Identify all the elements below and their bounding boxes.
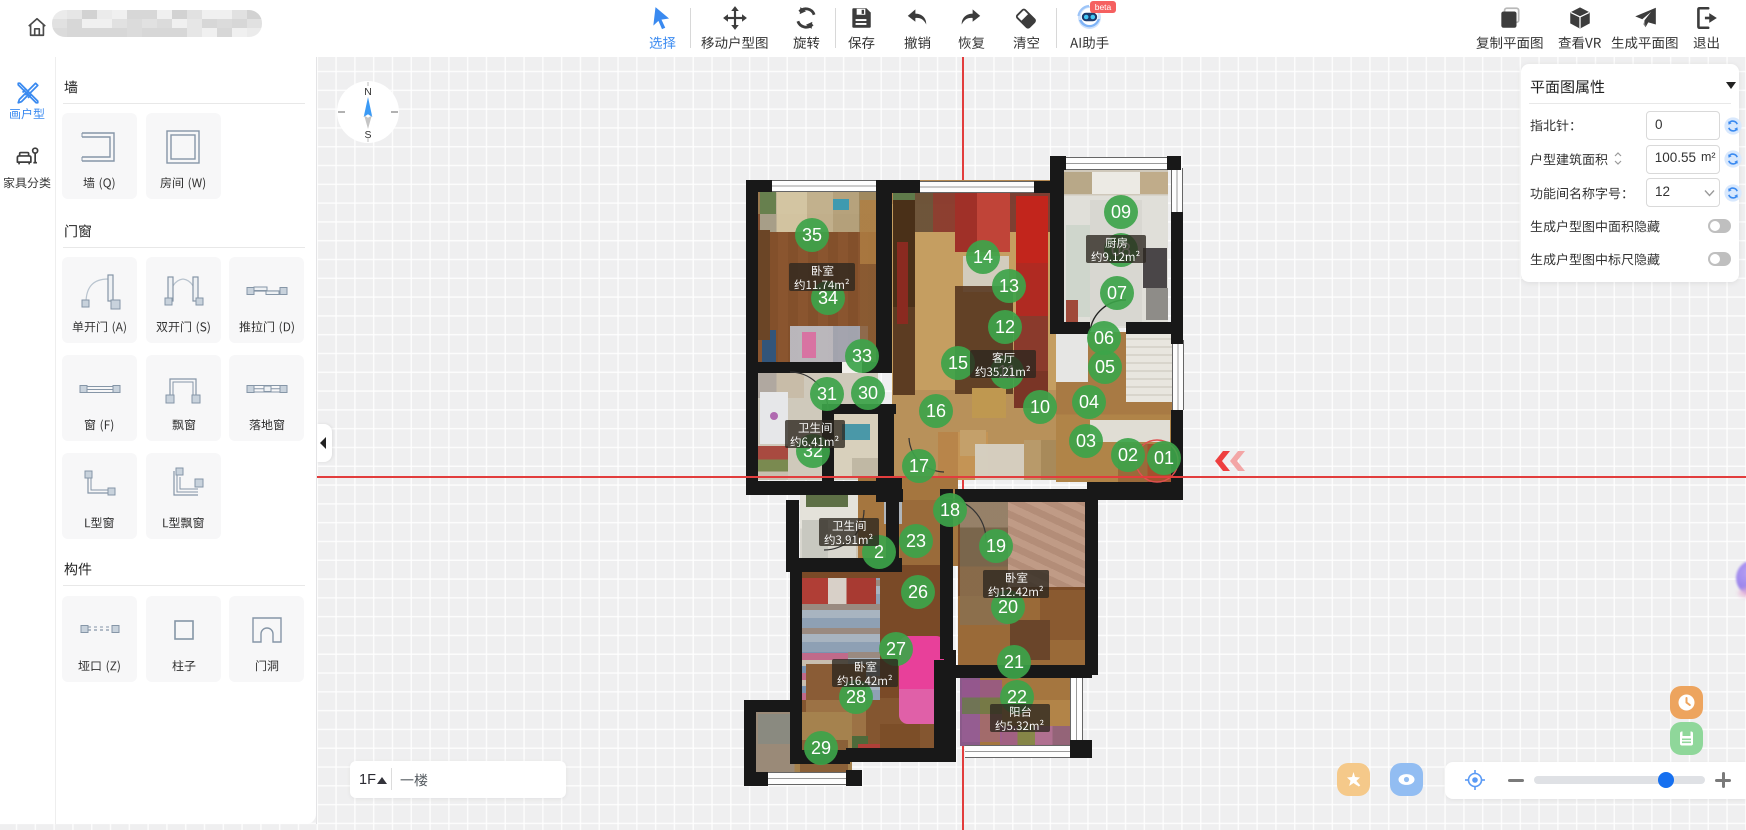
svg-text:S: S [364,129,371,141]
svg-text:N: N [364,86,372,98]
